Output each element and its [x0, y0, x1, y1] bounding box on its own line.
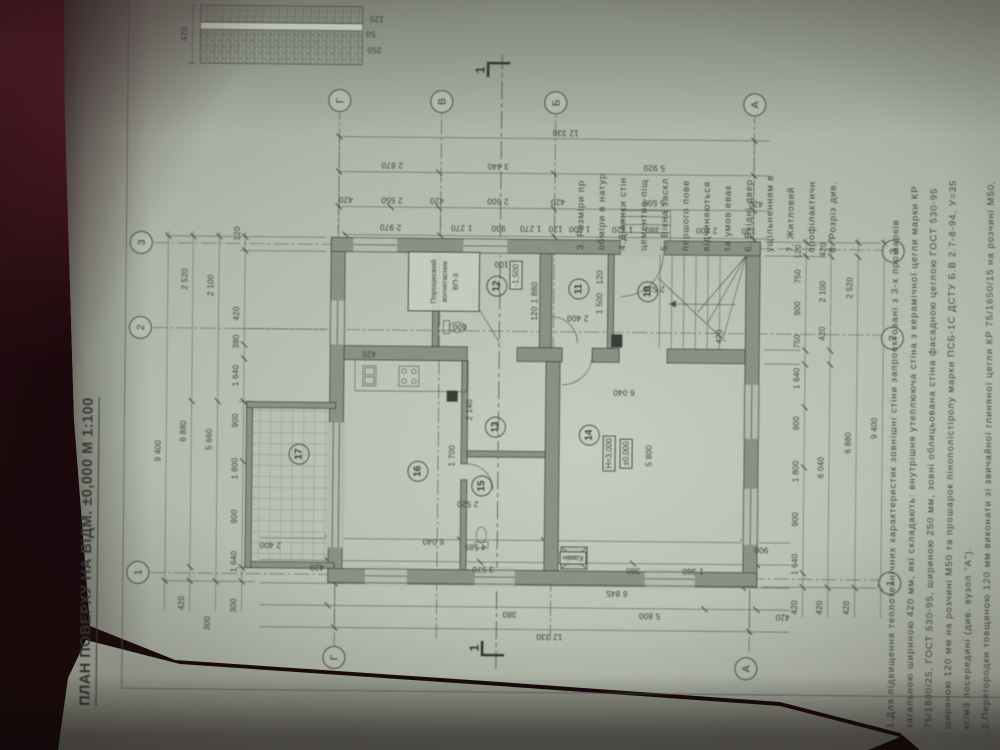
dimension-label: 380 [626, 566, 640, 575]
note-line: цементно-піщ [633, 8, 657, 251]
dimension-label: 2 520 [457, 499, 479, 508]
dimension-label: 6 040 [816, 457, 825, 479]
kitchen-fixtures [355, 360, 467, 392]
dimension-label: 1 640 [790, 553, 799, 575]
dimension-label: 420 [310, 563, 324, 572]
dimension-label: 420 [232, 306, 241, 320]
dimension-label: 1 800 [791, 460, 800, 482]
note-line: 4.Ділянки стін [612, 7, 636, 250]
note-line: 5. Вікна заскл [654, 8, 678, 251]
extinguisher-text-line: вогнегасник [438, 253, 450, 311]
notes-3-8: 3. Розміри пробміри в натур4.Ділянки сті… [570, 7, 858, 253]
room-number: 11 [568, 278, 589, 299]
dimension-label: 5 800 [644, 445, 653, 467]
note-line: відчиняються [696, 8, 720, 251]
axis-bubble: В [430, 90, 453, 113]
dimension-label: 420 [551, 197, 565, 206]
dimension-label: 1 880 [530, 282, 539, 304]
dimension-label: 1 270 [520, 224, 542, 233]
room-number: 14 [579, 425, 600, 446]
dimension-label: 300 [203, 616, 212, 630]
note-line: 8. Розріз див. [822, 10, 846, 253]
dimension-label: 420 [815, 600, 824, 614]
room-number: 12 [486, 276, 507, 297]
level-label: ±0,000 [619, 438, 632, 469]
dimension-label: 5 660 [205, 428, 214, 450]
terrace-tile-hatch [251, 408, 330, 563]
axis-bubble: Б [544, 91, 567, 114]
dimension-label: 2 100 [818, 281, 827, 303]
dimension-label: 120 [548, 224, 562, 233]
axis-bubble: Г [328, 89, 351, 112]
axis-bubble: А [734, 657, 757, 680]
detail-dimension-label: 50 [366, 29, 376, 38]
dimension-label: 6 880 [844, 432, 853, 454]
dimension-label: 2 520 [845, 277, 854, 299]
dimension-label: 420 [430, 196, 444, 205]
dimension-label: 900 [793, 301, 802, 315]
extinguisher-text-line: Порошковий [427, 252, 439, 310]
detail-dimension-label: 120 [369, 14, 383, 23]
dimension-label: 750 [793, 334, 802, 348]
dimension-label: 2 550 [381, 195, 403, 204]
dimension-label: 900 [791, 512, 800, 526]
dimension-label: 1 700 [447, 445, 456, 467]
dimension-label: 120 [595, 270, 604, 284]
wall-detail-node-a [188, 5, 363, 65]
dimension-label: 4 585 [464, 542, 486, 551]
dimension-label: 2 520 [643, 284, 665, 293]
note-line: профілактичн [801, 9, 825, 252]
dimension-label: 1 380 [682, 567, 704, 576]
room-number: 13 [485, 417, 506, 438]
note-line: 3. Розміри пр [570, 7, 594, 250]
level-label: H=3,000 [602, 435, 615, 472]
level-label: Камін [560, 551, 587, 564]
room-number: 17 [288, 443, 309, 464]
dimension-label: 380 [502, 610, 516, 619]
dimension-label: 12 330 [536, 632, 562, 641]
dimension-label: 300 [229, 598, 238, 612]
drawing-sheet-content: ПЛАН ПОВЕРХУ НА ВІДМ. ±0,000 М 1:100 123… [3, 0, 1000, 750]
level-label: -1,500 [509, 261, 522, 290]
dimension-label: 2 520 [180, 268, 189, 290]
dimension-label: 750 [793, 269, 802, 283]
dimension-label: 1 800 [230, 458, 239, 480]
dimension-label: 3 570 [472, 564, 494, 573]
dimension-label: 1 270 [451, 223, 473, 232]
dimension-label: 1 640 [792, 367, 801, 389]
room-number: 15 [471, 475, 492, 496]
dimension-label: 380 [232, 334, 241, 348]
axis-bubble: 2 [129, 316, 152, 339]
dimension-label: 2 400 [259, 540, 281, 549]
note-line: ущільненням в [759, 9, 783, 252]
dimension-label: 1 640 [231, 365, 240, 387]
vent-shafts [447, 333, 623, 404]
dimension-label: 2 970 [380, 222, 402, 231]
dimension-label: 420 [339, 195, 353, 204]
dimension-label: 6 040 [422, 537, 444, 546]
fire-extinguisher-label: ПорошковийвогнегасникВП-3 [408, 251, 481, 312]
dimension-label: 2 870 [381, 160, 403, 169]
dimension-label: 2 600 [487, 197, 509, 206]
dimension-label: 900 [754, 545, 768, 554]
photographed-floorplan-page: ПЛАН ПОВЕРХУ НА ВІДМ. ±0,000 М 1:100 123… [0, 0, 1000, 750]
dimension-label: 420 [818, 326, 827, 340]
dimension-label: 420 [715, 329, 724, 343]
dimension-label: 2 100 [206, 274, 215, 296]
note-line: 7. Житловий [780, 9, 804, 252]
page-title: ПЛАН ПОВЕРХУ НА ВІДМ. ±0,000 М 1:100 [77, 397, 99, 706]
note-line: обміри в натур [591, 7, 615, 250]
section-mark-label: 1 [473, 66, 488, 73]
dimension-label: 6 040 [613, 388, 635, 397]
room-number: 16 [407, 461, 428, 482]
dimension-label: 420 [842, 601, 851, 615]
dimension-label: 120 [233, 226, 242, 240]
dimension-label: 600 [452, 322, 466, 331]
dimension-label: 3 440 [487, 162, 509, 171]
note-line: 6. Вхідні двер [738, 9, 762, 252]
axis-bubble: Г [322, 646, 345, 669]
dimension-label: 1 640 [229, 551, 238, 573]
dimension-label: 2 140 [465, 399, 474, 421]
dimension-label: 900 [230, 509, 239, 523]
dimension-label: 2 400 [567, 313, 589, 322]
dimension-label: 1 500 [595, 292, 604, 314]
dimension-label: 9 400 [154, 440, 163, 462]
dimension-label: 6 845 [606, 589, 628, 598]
detail-dimension-label: 420 [180, 27, 189, 41]
detail-dimension-label: 250 [367, 45, 381, 54]
dimension-label: 9 400 [870, 417, 879, 439]
dimension-label: 900 [491, 224, 505, 233]
note-line: та умов евак [717, 8, 741, 251]
axis-bubble: 1 [126, 561, 149, 584]
dimension-label: 420 [790, 600, 799, 614]
dimension-label: 5 800 [639, 611, 661, 620]
extinguisher-text-line: ВП-3 [449, 253, 461, 311]
notes-1-2: 1.Для підвищення теплотехнічних характер… [881, 12, 1000, 729]
dimension-label: 6 880 [179, 420, 188, 442]
axis-bubble: 3 [130, 231, 153, 254]
section-mark-label: 1 [467, 644, 482, 651]
dimension-label: 120 [530, 306, 539, 320]
dimension-label: 900 [792, 416, 801, 430]
dimension-label: 420 [177, 596, 186, 610]
note-line: першого пове [675, 8, 699, 251]
dimension-label: 900 [231, 413, 240, 427]
dimension-label: 420 [362, 349, 376, 358]
dimension-label: 420 [775, 613, 789, 622]
